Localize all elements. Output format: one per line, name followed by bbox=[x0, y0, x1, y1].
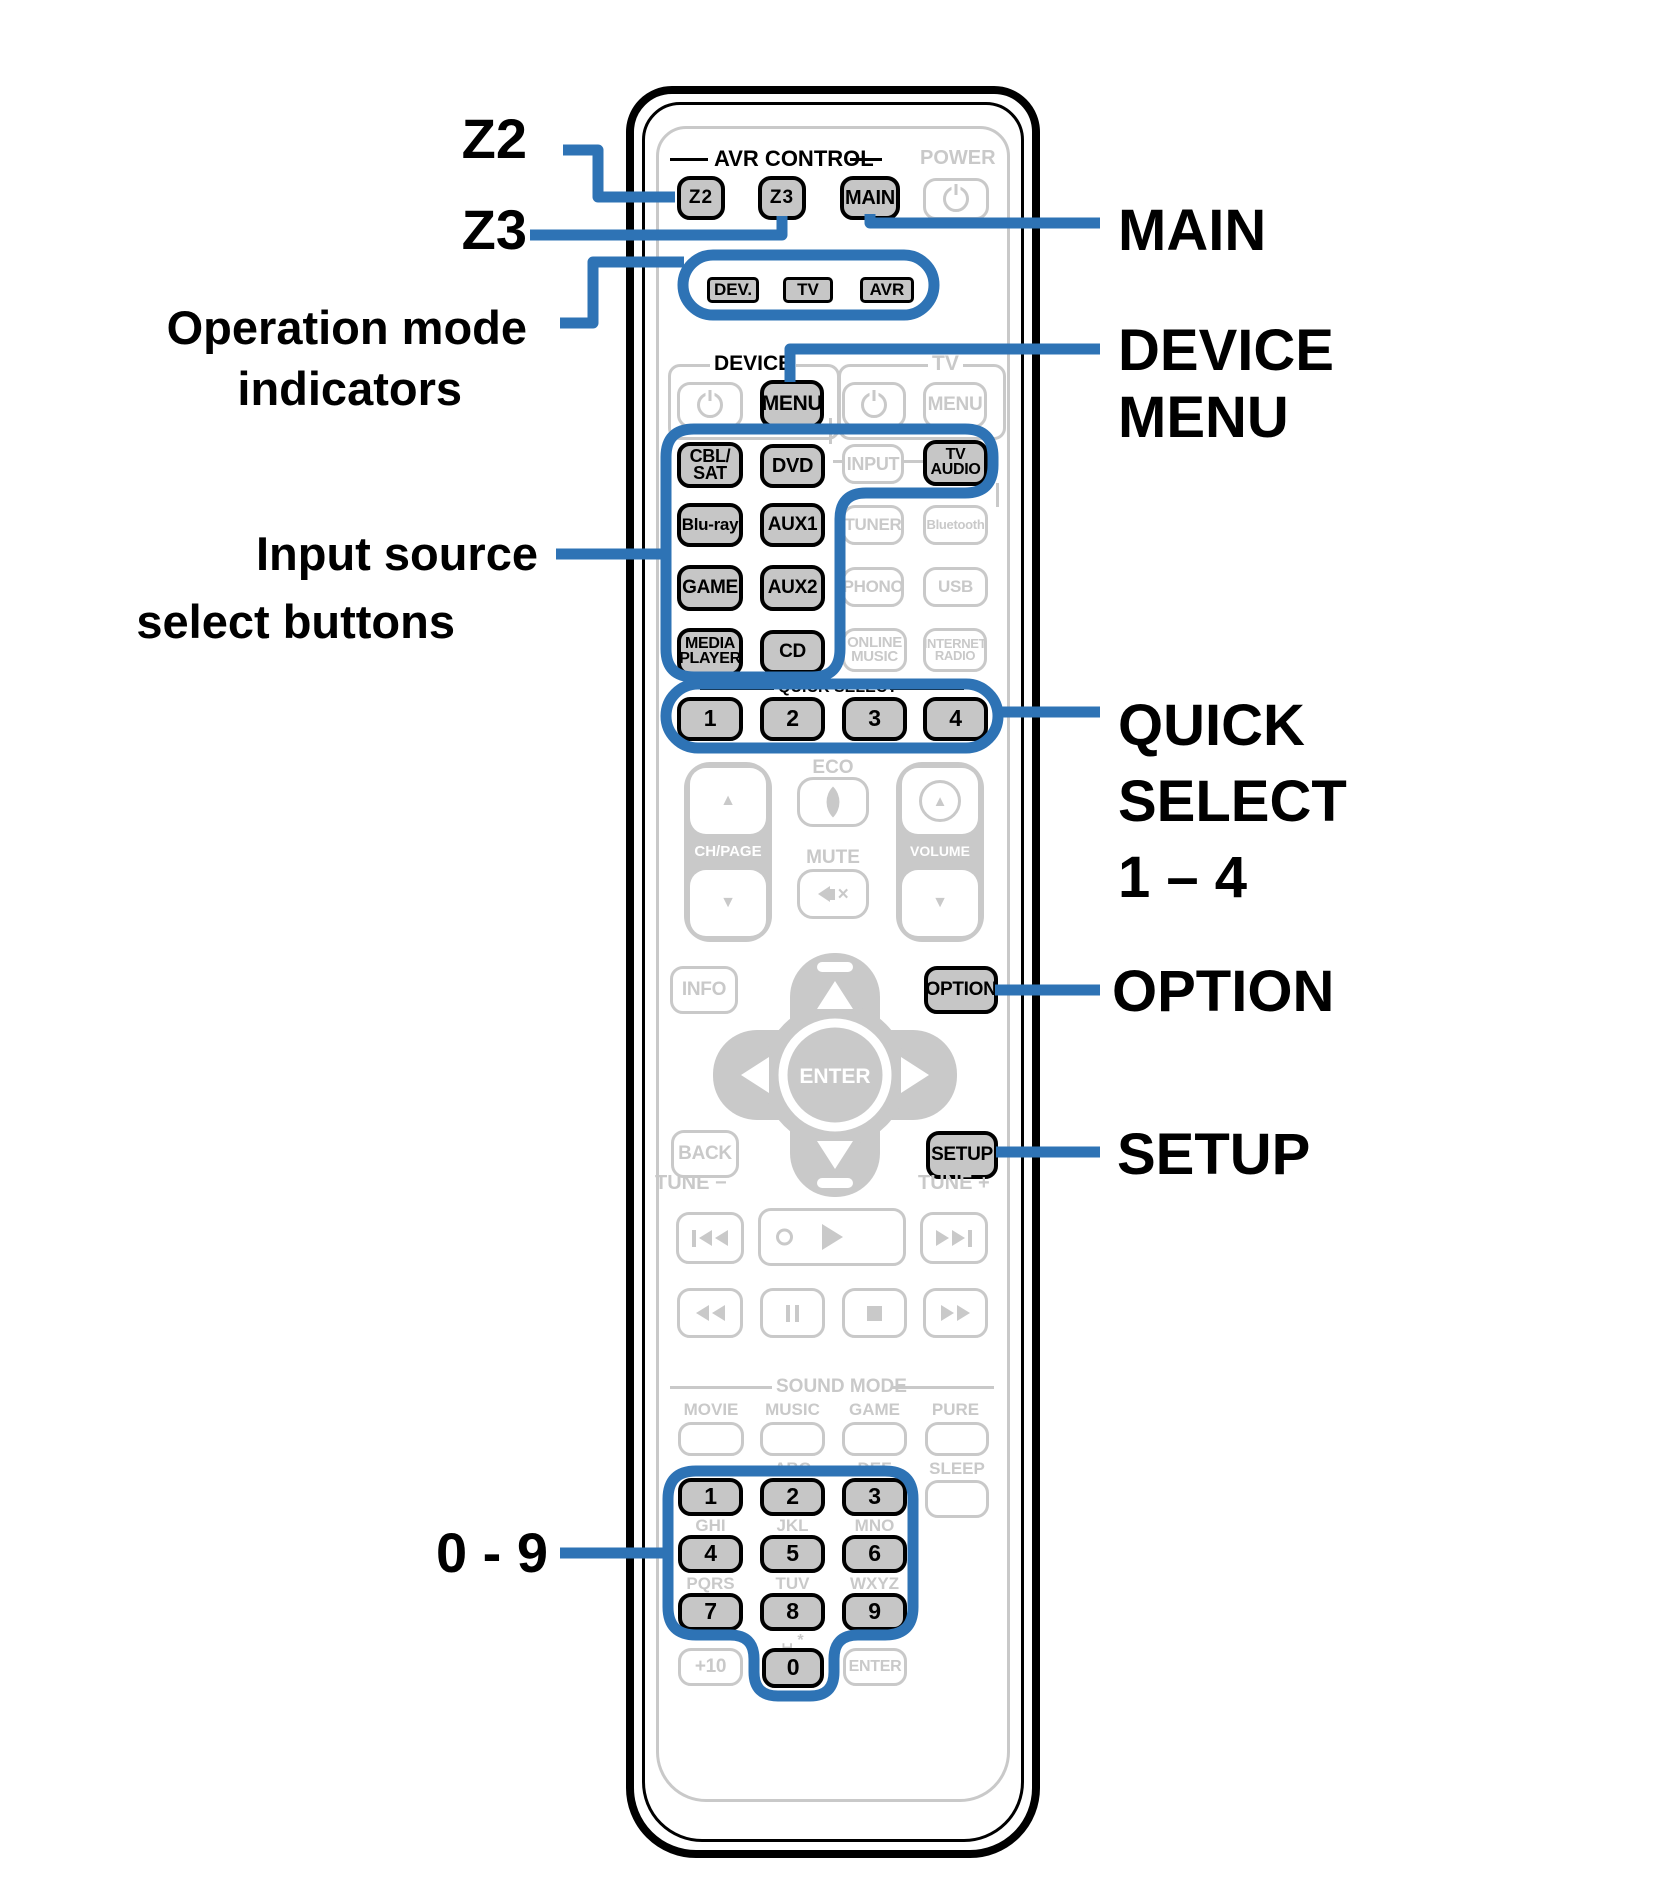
device-menu-button[interactable]: MENU bbox=[760, 380, 824, 428]
volume-up-circle-icon: ▲ bbox=[919, 780, 961, 822]
play-button[interactable] bbox=[758, 1208, 906, 1266]
tune-minus-label: TUNE − bbox=[655, 1172, 727, 1195]
callout-operation-mode-label-2: indicators bbox=[237, 364, 462, 413]
skip-back-button[interactable] bbox=[676, 1212, 744, 1264]
letters-tuv: TUV bbox=[760, 1574, 825, 1594]
volume-rocker: ▲ VOLUME ▼ bbox=[896, 762, 984, 942]
callout-device-menu-label: DEVICE MENU bbox=[1118, 317, 1334, 452]
skip-back-icon bbox=[692, 1230, 728, 1247]
source-aux1-button[interactable]: AUX1 bbox=[760, 503, 825, 547]
skip-forward-icon bbox=[936, 1230, 972, 1247]
sound-game-label: GAME bbox=[842, 1400, 907, 1420]
avr-control-title: AVR CONTROL bbox=[714, 146, 846, 172]
source-cd-button[interactable]: CD bbox=[760, 630, 825, 674]
avr-control-left-dash bbox=[670, 158, 708, 161]
quick-select-1-button[interactable]: 1 bbox=[677, 697, 743, 741]
remote-diagram-page: AVR CONTROL POWER Z2 Z3 MAIN DEV. TV AVR… bbox=[0, 0, 1665, 1878]
eco-leaf-icon bbox=[817, 786, 848, 817]
enter-label: ENTER bbox=[799, 1065, 870, 1088]
space-star-label: ␣ * bbox=[760, 1630, 825, 1650]
callout-input-source-label-1: Input source bbox=[256, 529, 538, 578]
letters-wxyz: WXYZ bbox=[842, 1574, 907, 1594]
rewind-icon bbox=[696, 1305, 725, 1321]
source-cbl-sat-button[interactable]: CBL/ SAT bbox=[677, 442, 743, 488]
record-dot-icon bbox=[776, 1229, 793, 1246]
callout-operation-mode-label-1: Operation mode bbox=[167, 303, 527, 352]
power-button[interactable] bbox=[923, 178, 989, 220]
source-phono-button[interactable]: PHONO bbox=[842, 567, 904, 607]
channel-page-rocker: ▲ CH/PAGE ▼ bbox=[684, 762, 772, 942]
source-tuner-button[interactable]: TUNER bbox=[842, 505, 904, 545]
tv-menu-button[interactable]: MENU bbox=[923, 382, 987, 428]
callout-z3-label: Z3 bbox=[462, 201, 527, 260]
letters-abc: ABC bbox=[760, 1459, 825, 1479]
source-input-button[interactable]: INPUT bbox=[842, 444, 904, 484]
key-6-button[interactable]: 6 bbox=[842, 1535, 907, 1573]
key-8-button[interactable]: 8 bbox=[760, 1593, 825, 1631]
source-aux2-button[interactable]: AUX2 bbox=[760, 565, 825, 611]
fast-forward-icon bbox=[941, 1305, 970, 1321]
key-5-button[interactable]: 5 bbox=[760, 1535, 825, 1573]
sound-music-button[interactable] bbox=[760, 1422, 825, 1456]
dpad-bottom-pill bbox=[817, 1178, 853, 1188]
volume-up-button[interactable]: ▲ bbox=[902, 768, 978, 834]
avr-control-right-dash bbox=[850, 158, 882, 161]
down-triangle-icon: ▼ bbox=[932, 894, 948, 912]
z2-button[interactable]: Z2 bbox=[677, 176, 725, 220]
z3-button[interactable]: Z3 bbox=[758, 176, 806, 220]
sleep-button[interactable] bbox=[925, 1480, 989, 1518]
skip-forward-button[interactable] bbox=[920, 1212, 988, 1264]
device-power-button[interactable] bbox=[677, 382, 743, 428]
source-bluetooth-button[interactable]: Bluetooth bbox=[923, 505, 988, 545]
sound-mode-right-dash bbox=[892, 1386, 994, 1389]
device-power-icon bbox=[697, 392, 723, 418]
power-icon bbox=[943, 186, 969, 212]
source-internet-radio-button[interactable]: INTERNET RADIO bbox=[923, 628, 987, 672]
tv-section-title: TV bbox=[928, 353, 963, 374]
letters-jkl: JKL bbox=[760, 1516, 825, 1536]
sound-game-button[interactable] bbox=[842, 1422, 907, 1456]
source-media-player-button[interactable]: MEDIA PLAYER bbox=[677, 628, 743, 676]
callout-main-label: MAIN bbox=[1118, 201, 1266, 262]
tv-power-button[interactable] bbox=[842, 382, 906, 428]
source-tv-audio-button[interactable]: TV AUDIO bbox=[923, 440, 988, 486]
key-9-button[interactable]: 9 bbox=[842, 1593, 907, 1631]
sound-mode-title: SOUND MODE bbox=[776, 1376, 890, 1398]
key-3-button[interactable]: 3 bbox=[842, 1478, 907, 1516]
quick-select-right-dash bbox=[890, 687, 964, 690]
connector-tick-3 bbox=[902, 460, 923, 463]
letters-pqrs: PQRS bbox=[678, 1574, 743, 1594]
stop-icon bbox=[867, 1306, 882, 1321]
letters-ghi: GHI bbox=[678, 1516, 743, 1536]
volume-down-button[interactable]: ▼ bbox=[902, 870, 978, 936]
main-button[interactable]: MAIN bbox=[840, 176, 900, 220]
indicator-dev[interactable]: DEV. bbox=[707, 277, 759, 303]
keypad-enter-button[interactable]: ENTER bbox=[843, 1648, 907, 1686]
callout-input-source-label-2: select buttons bbox=[136, 597, 455, 646]
channel-up-button[interactable]: ▲ bbox=[690, 768, 766, 834]
eco-button[interactable] bbox=[797, 777, 869, 827]
mute-speaker-icon: × bbox=[818, 885, 849, 904]
tune-plus-label: TUNE + bbox=[918, 1172, 990, 1195]
callout-z2-label: Z2 bbox=[462, 110, 527, 169]
callout-setup-label: SETUP bbox=[1117, 1125, 1310, 1186]
pause-icon bbox=[786, 1305, 799, 1322]
callout-option-label: OPTION bbox=[1112, 962, 1334, 1023]
channel-down-button[interactable]: ▼ bbox=[690, 870, 766, 936]
up-triangle-icon: ▲ bbox=[720, 792, 736, 810]
tv-power-icon bbox=[861, 392, 887, 418]
eco-label: ECO bbox=[805, 757, 861, 779]
sound-movie-button[interactable] bbox=[678, 1422, 744, 1456]
source-game-button[interactable]: GAME bbox=[677, 565, 743, 611]
quick-select-4-button[interactable]: 4 bbox=[923, 697, 988, 741]
key-0-button[interactable]: 0 bbox=[762, 1648, 824, 1688]
play-icon bbox=[822, 1224, 843, 1250]
quick-select-title: QUICK SELECT bbox=[778, 679, 888, 697]
back-button[interactable]: BACK bbox=[671, 1130, 739, 1178]
stop-button[interactable] bbox=[842, 1288, 907, 1338]
plus10-button[interactable]: +10 bbox=[678, 1648, 743, 1686]
key-1-button[interactable]: 1 bbox=[678, 1478, 743, 1516]
quick-select-left-dash bbox=[700, 687, 774, 690]
mute-button[interactable]: × bbox=[797, 869, 869, 919]
source-online-music-button[interactable]: ONLINE MUSIC bbox=[842, 628, 907, 672]
indicator-avr[interactable]: AVR bbox=[860, 277, 914, 303]
sound-music-label: MUSIC bbox=[760, 1400, 825, 1420]
channel-page-label: CH/PAGE bbox=[684, 843, 772, 860]
source-dvd-button[interactable]: DVD bbox=[760, 444, 825, 488]
quick-select-3-button[interactable]: 3 bbox=[842, 697, 907, 741]
sound-movie-label: MOVIE bbox=[678, 1400, 744, 1420]
sound-mode-left-dash bbox=[670, 1386, 772, 1389]
fast-forward-button[interactable] bbox=[923, 1288, 988, 1338]
source-usb-button[interactable]: USB bbox=[923, 567, 988, 607]
key-4-button[interactable]: 4 bbox=[678, 1535, 743, 1573]
quick-select-2-button[interactable]: 2 bbox=[760, 697, 825, 741]
sound-pure-button[interactable] bbox=[925, 1422, 989, 1456]
letters-mno: MNO bbox=[842, 1516, 907, 1536]
letters-def: DEF bbox=[842, 1459, 907, 1479]
connector-tick-1 bbox=[829, 418, 832, 444]
callout-digits-label: 0 - 9 bbox=[436, 1524, 548, 1583]
device-section-title: DEVICE bbox=[710, 353, 796, 374]
rewind-button[interactable] bbox=[677, 1288, 743, 1338]
callout-quick-select-label: QUICK SELECT 1 – 4 bbox=[1118, 688, 1347, 916]
mute-label: MUTE bbox=[803, 847, 863, 869]
key-2-button[interactable]: 2 bbox=[760, 1478, 825, 1516]
volume-label: VOLUME bbox=[896, 843, 984, 859]
sleep-label: SLEEP bbox=[925, 1459, 989, 1479]
dpad-top-pill bbox=[817, 962, 853, 972]
down-triangle-icon: ▼ bbox=[720, 894, 736, 912]
key-7-button[interactable]: 7 bbox=[678, 1593, 743, 1631]
source-blu-ray-button[interactable]: Blu-ray bbox=[677, 503, 743, 547]
indicator-tv[interactable]: TV bbox=[783, 277, 833, 303]
sound-pure-label: PURE bbox=[923, 1400, 988, 1420]
connector-tick-4 bbox=[996, 483, 999, 507]
pause-button[interactable] bbox=[760, 1288, 825, 1338]
direction-pad[interactable]: ENTER bbox=[713, 953, 957, 1197]
power-section-label: POWER bbox=[920, 147, 990, 170]
